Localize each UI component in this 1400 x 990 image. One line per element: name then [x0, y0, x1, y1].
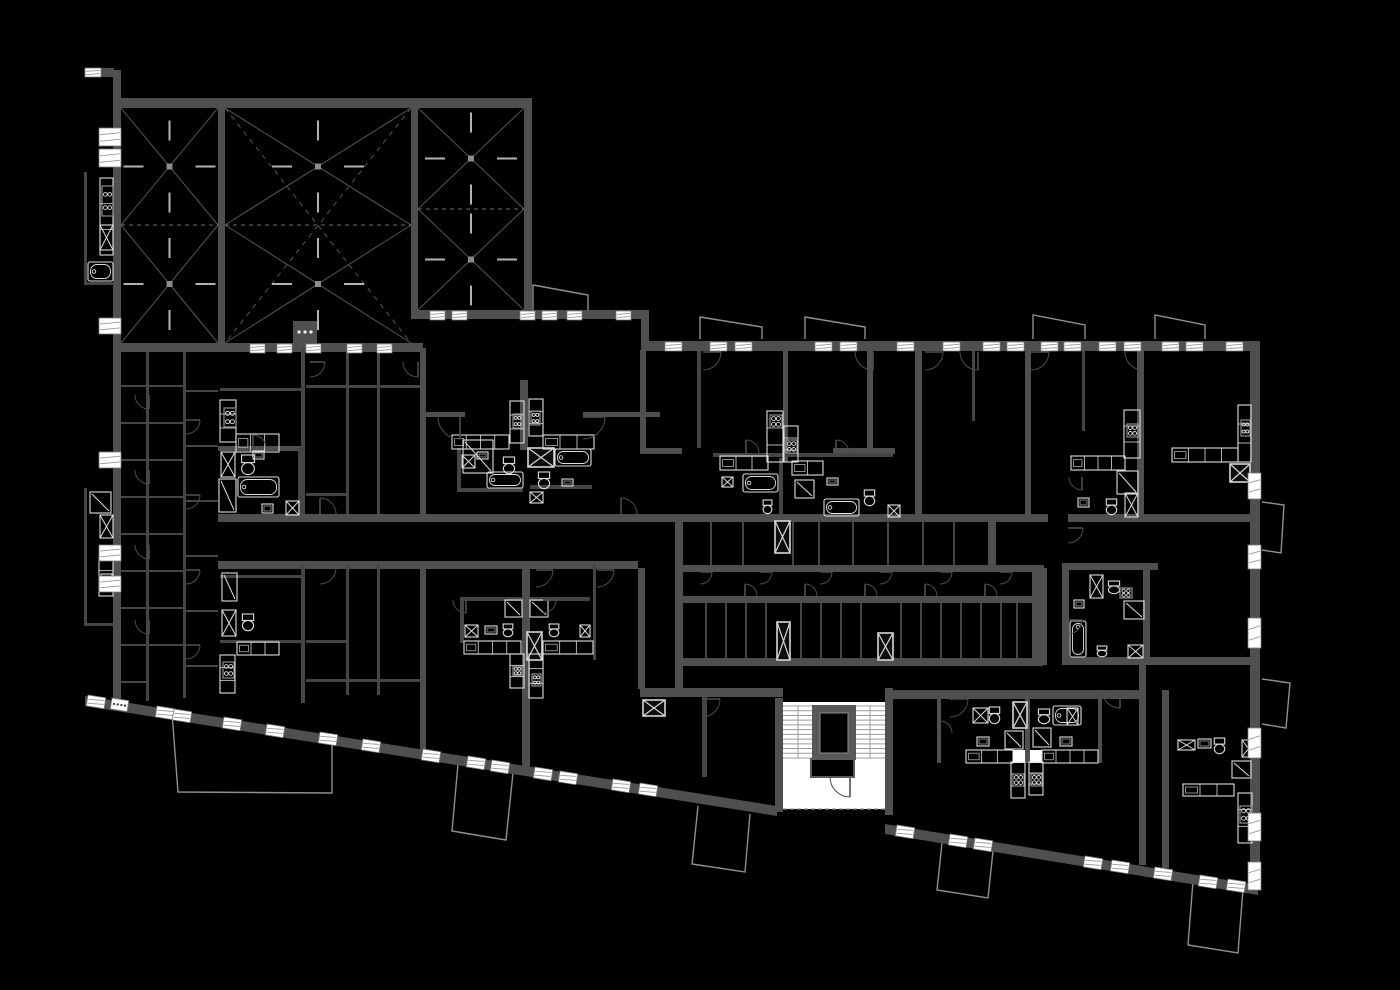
burner [1242, 816, 1246, 820]
window-pane [347, 344, 362, 353]
fixture-wc [242, 614, 253, 631]
window [1248, 862, 1261, 890]
partition [457, 448, 461, 492]
partition [742, 521, 744, 565]
partition [121, 607, 146, 609]
burner [224, 672, 228, 676]
burner [772, 422, 776, 426]
fixture-stove-outline [531, 411, 540, 425]
partition [149, 385, 183, 387]
fixture-shw [530, 600, 548, 617]
fixture-xbox [1128, 645, 1143, 658]
shower-diagonal [507, 602, 520, 615]
partition [121, 570, 146, 572]
wall [1062, 568, 1069, 665]
partition [377, 565, 380, 695]
shower-diagonal [465, 442, 491, 471]
shaft [777, 622, 790, 660]
door [950, 699, 968, 717]
burner [103, 206, 107, 210]
window-pane [1248, 473, 1261, 499]
wc-bowl [1097, 650, 1107, 657]
fixture-stove-outline [102, 186, 113, 216]
partition [460, 488, 523, 492]
door-swing-arc [186, 420, 200, 434]
fixture-wc [1038, 709, 1049, 724]
burner [514, 667, 517, 670]
fixture-xbox [530, 492, 543, 503]
burner [533, 676, 536, 679]
balcony-outline [1262, 679, 1290, 728]
door [320, 568, 336, 584]
window [377, 344, 392, 353]
window-pane [1153, 867, 1172, 881]
partition [149, 607, 183, 609]
crosshair-node [468, 257, 474, 263]
wc-tank [1106, 499, 1116, 505]
door [925, 352, 943, 370]
window [1186, 342, 1203, 351]
wc-tank [989, 707, 999, 713]
balcony-outline [700, 317, 762, 339]
partition [121, 459, 146, 461]
window-pane [943, 342, 960, 351]
door [583, 417, 605, 439]
window-pane [533, 767, 552, 781]
fixture-wc [549, 624, 559, 637]
window-pane [1124, 342, 1141, 351]
window-pane [99, 318, 121, 334]
fixture-shw [90, 492, 111, 513]
fixture-crow [237, 642, 279, 655]
window [638, 783, 657, 797]
wc-tank [1038, 709, 1049, 715]
window-pane [277, 344, 292, 353]
fixture-sink [827, 478, 838, 485]
window [611, 779, 630, 793]
window-pane [1041, 342, 1058, 351]
window-pane [735, 342, 752, 351]
door [320, 498, 336, 514]
window-pane [99, 452, 121, 468]
door-swing-arc [438, 417, 460, 439]
window-pane [318, 732, 337, 746]
burner [518, 667, 521, 670]
partition [306, 493, 346, 496]
partition [121, 422, 146, 424]
crosshair-node [315, 164, 321, 170]
window [735, 342, 752, 351]
fixture-sink [977, 737, 989, 746]
fixture-xbox [100, 515, 113, 538]
wall [1062, 657, 1258, 665]
wall [218, 561, 638, 569]
counter-sink [795, 465, 806, 472]
fixture-sink [262, 504, 273, 513]
shower-diagonal [1007, 733, 1021, 747]
fixture-stove-outline [224, 408, 236, 427]
door-swing-arc [925, 584, 937, 596]
partition [860, 603, 862, 658]
door-swing-arc [880, 572, 892, 584]
window [1041, 342, 1058, 351]
fixture-stove-outline [1241, 420, 1250, 436]
fixture-xbox [1178, 740, 1195, 750]
tub-basin [490, 475, 521, 486]
fixture-layer [88, 178, 1255, 843]
window [1162, 342, 1179, 351]
partition [705, 603, 707, 658]
partition [149, 459, 183, 461]
window-pane [306, 344, 321, 353]
fixture-wc [1106, 499, 1116, 515]
fixture-xbox [221, 452, 235, 477]
wall [1139, 665, 1146, 865]
wall [867, 348, 873, 453]
window [1248, 545, 1261, 569]
window-pane [86, 695, 105, 709]
fixture-wc [1214, 738, 1224, 754]
fixture-wcell [1030, 750, 1042, 763]
partition [887, 521, 889, 565]
balcony-outline [533, 285, 588, 313]
wc-bowl [763, 505, 772, 513]
door-swing-arc [703, 352, 721, 370]
fixture-shw [1232, 761, 1251, 778]
shower-diagonal [221, 481, 234, 510]
door-swing-arc [925, 352, 943, 370]
fixture-kcol-outline [1238, 405, 1251, 462]
fixture-crow [1071, 456, 1125, 470]
door [536, 570, 553, 587]
wall [218, 514, 1048, 522]
window-pane [558, 771, 577, 785]
crosshair-node [468, 156, 474, 162]
window-pane [1248, 545, 1261, 569]
burner [1019, 775, 1023, 779]
wall [915, 348, 922, 514]
crosshair-node [167, 281, 173, 287]
fixture-wc [1108, 581, 1119, 594]
window [895, 825, 914, 839]
crosshair-node [167, 164, 173, 170]
shaft [878, 633, 893, 660]
fixture-xbox [973, 708, 988, 723]
door [760, 572, 772, 584]
wc-tank [538, 472, 549, 478]
window-pane [361, 739, 380, 753]
door-swing-arc [597, 570, 614, 587]
partition [710, 521, 712, 565]
window [948, 834, 967, 848]
partition [149, 570, 183, 572]
tub-drain [1057, 714, 1061, 718]
door-swing-arc [950, 699, 968, 717]
tub-drain [242, 485, 246, 489]
window-pane [265, 724, 284, 738]
window-pane [638, 783, 657, 797]
fixture-xbox [222, 610, 236, 636]
fixture-shw [795, 480, 814, 498]
partition [765, 603, 767, 658]
partition [186, 390, 218, 392]
burner [1014, 775, 1018, 779]
window-pane [1186, 342, 1203, 351]
wc-bowl [1038, 715, 1049, 724]
balcony-outline [1188, 881, 1243, 953]
partition [186, 665, 218, 667]
shaft [775, 521, 790, 553]
shaft [1230, 464, 1250, 482]
fixture-stove-outline [532, 674, 541, 686]
wc-bowl [1214, 744, 1224, 754]
window [1124, 342, 1141, 351]
window-pane [430, 311, 445, 320]
fixture-crow [543, 641, 593, 654]
partition [149, 533, 183, 535]
sink-basin [564, 481, 571, 484]
burner [1246, 430, 1249, 433]
fixture-shw [1124, 601, 1144, 619]
window [99, 149, 121, 167]
partition [800, 603, 802, 658]
sink-basin [1200, 741, 1209, 746]
window [466, 756, 485, 770]
burner [772, 417, 776, 421]
burner [226, 420, 230, 424]
wc-tank [503, 624, 513, 629]
window-pane [99, 545, 121, 561]
tub-drain [92, 270, 96, 274]
fixture-kcol [1238, 405, 1251, 462]
partition [84, 282, 114, 285]
partition [1082, 351, 1085, 431]
fixture-crow-outline [237, 642, 279, 655]
partition [460, 597, 464, 643]
burner [226, 411, 230, 415]
partition [186, 555, 218, 557]
wc-tank [503, 457, 514, 463]
partition [920, 603, 922, 658]
door-swing-arc [760, 572, 772, 584]
wall [524, 108, 532, 319]
window-pane [948, 834, 967, 848]
window [155, 706, 174, 720]
partition [346, 565, 349, 695]
window-pane [1226, 342, 1243, 351]
door-swing-arc [940, 572, 952, 584]
fixture-stove [532, 674, 541, 686]
partition [922, 521, 924, 565]
fixture-crow [543, 435, 594, 449]
fixture-xbox [1125, 493, 1138, 517]
partition [960, 603, 962, 658]
wall [1032, 565, 1040, 666]
partition [306, 385, 420, 388]
balcony-outline [1155, 315, 1205, 339]
floor-plan: Residential building floor plan (CAD dra… [0, 0, 1400, 990]
door-swing-arc [320, 568, 336, 584]
window [1064, 342, 1081, 351]
counter-sink [546, 644, 558, 651]
wc-bowl [242, 463, 255, 475]
burner [1242, 430, 1245, 433]
window-pane [250, 344, 265, 353]
wc-bowl [989, 713, 999, 723]
window-layer [85, 68, 1261, 893]
window [983, 342, 1000, 351]
window [973, 838, 992, 852]
fixture-sink [1074, 600, 1084, 608]
door-swing-arc [985, 584, 997, 596]
fixture-tubH [555, 449, 591, 466]
floor-plan-canvas: Residential building floor plan (CAD dra… [0, 0, 1400, 990]
window-pane [452, 311, 467, 320]
window [897, 342, 914, 351]
elevator-cab [820, 713, 848, 753]
window-pane [567, 311, 582, 320]
window [99, 452, 121, 468]
door-swing-arc [536, 570, 553, 587]
fixture-stove [102, 186, 113, 216]
window-pane [85, 68, 101, 77]
fixture-stove [531, 411, 540, 425]
partition [186, 500, 218, 502]
partition [900, 603, 902, 658]
window-pane [490, 760, 509, 774]
partition [346, 352, 349, 514]
wall [113, 98, 532, 108]
partition [306, 679, 420, 682]
wall [100, 68, 114, 77]
wall [218, 108, 225, 348]
door-swing-arc [583, 417, 605, 439]
fixture-sink [1198, 739, 1211, 748]
door [403, 362, 418, 377]
partition [149, 422, 183, 424]
burner [792, 442, 796, 446]
tub-basin [91, 265, 111, 279]
window-pane [520, 311, 535, 320]
tub-basin [1073, 624, 1084, 655]
window [85, 68, 101, 77]
burner [230, 420, 234, 424]
partition [301, 565, 305, 703]
balcony-outline [692, 806, 750, 872]
door-swing-arc [186, 570, 200, 584]
fixture-wc [503, 624, 513, 637]
sink-basin [1080, 500, 1087, 505]
fixture-crow [1172, 448, 1238, 462]
fixture-tubH [743, 474, 778, 492]
window-pane [710, 342, 727, 351]
wall [420, 565, 426, 750]
window [222, 717, 241, 731]
burner [776, 422, 780, 426]
counter-sink [723, 460, 734, 467]
wc-bowl [864, 496, 874, 506]
burner [1127, 594, 1130, 597]
sink-basin [487, 628, 495, 632]
burner [792, 447, 796, 451]
window-pane [1099, 342, 1116, 351]
window [665, 342, 682, 351]
window-pane [155, 706, 174, 720]
burner [1128, 431, 1132, 435]
door [805, 584, 817, 596]
door [940, 721, 952, 733]
burner [1242, 423, 1245, 426]
window [86, 695, 105, 709]
stair-layer [783, 702, 885, 809]
window-pane [1248, 862, 1261, 890]
fixture-crow-outline [543, 435, 594, 449]
fixture-xbox [462, 455, 475, 468]
window [1248, 728, 1261, 758]
wall [638, 568, 645, 689]
fixture-stove [770, 415, 782, 428]
fixture-crow-outline [720, 456, 768, 470]
balcony-outline [1262, 502, 1284, 553]
partition [725, 603, 727, 658]
burner [103, 193, 107, 197]
fixture-wc [864, 490, 874, 506]
window-pane [1007, 342, 1024, 351]
fixture-shw [1005, 731, 1023, 749]
window-pane [99, 576, 121, 592]
door-swing-arc [960, 352, 978, 370]
wall [218, 446, 302, 451]
door-swing-arc [453, 600, 466, 613]
door-swing-arc [700, 572, 712, 584]
tub-drain [559, 456, 563, 460]
balcony-outline [452, 764, 513, 840]
fixture-sink [1078, 498, 1089, 507]
wc-bowl [1106, 505, 1116, 515]
partition [972, 351, 975, 421]
partition [84, 172, 87, 284]
wall [113, 343, 423, 352]
partition [840, 603, 842, 658]
window [558, 771, 577, 785]
shower-diagonal [1126, 603, 1142, 617]
wall [1040, 568, 1047, 665]
partition [306, 640, 346, 643]
burner [514, 672, 517, 675]
sink-basin [264, 506, 271, 511]
wc-bowl [503, 629, 513, 637]
partition [121, 385, 146, 387]
door [925, 584, 937, 596]
counter-sink [1045, 753, 1054, 760]
door-swing-arc [1000, 572, 1012, 584]
xroom [418, 108, 524, 310]
window [361, 739, 380, 753]
door [310, 362, 325, 377]
door [186, 645, 200, 659]
wc-tank [1108, 581, 1119, 586]
window [1153, 867, 1172, 881]
window [533, 767, 552, 781]
window-pane [1248, 728, 1261, 758]
wall [893, 690, 1143, 699]
counter-sink [240, 645, 249, 652]
window [815, 342, 832, 351]
window [1198, 875, 1217, 889]
door [1068, 528, 1083, 543]
wall [683, 565, 1038, 572]
partition [186, 445, 218, 447]
